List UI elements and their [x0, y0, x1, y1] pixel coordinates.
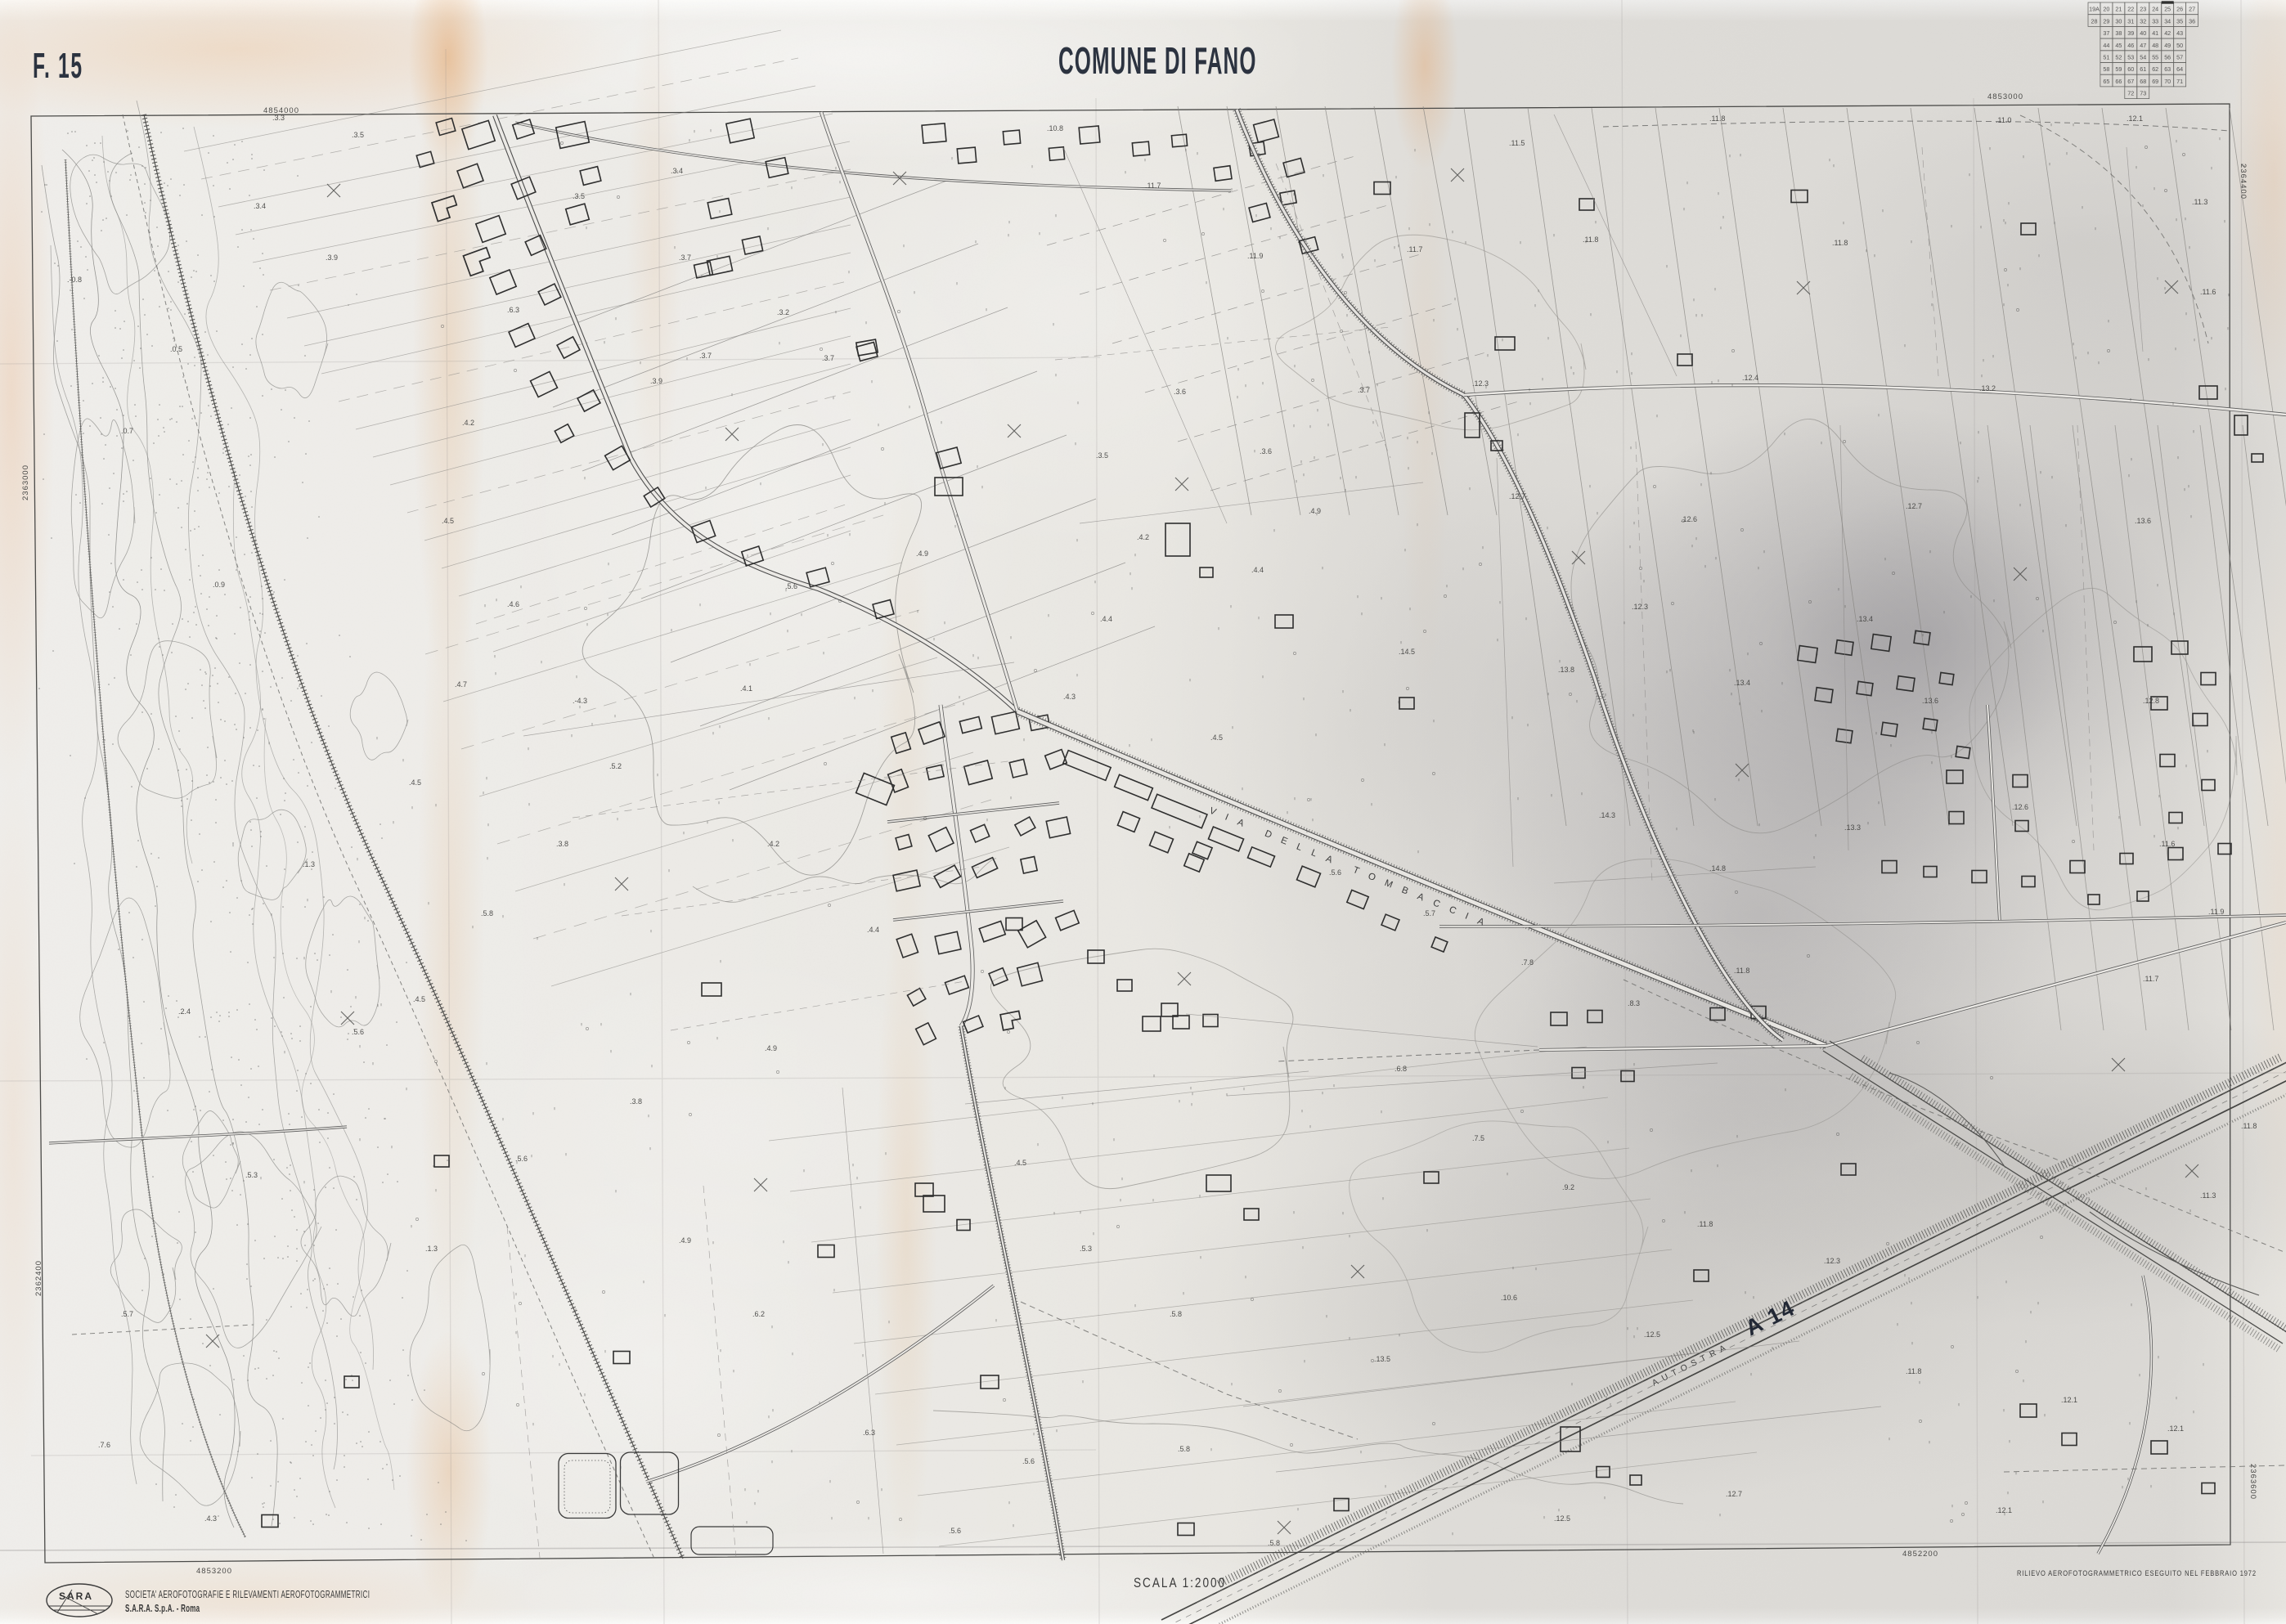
svg-text:.4.5: .4.5 [409, 778, 421, 787]
svg-text:.6.2: .6.2 [752, 1310, 765, 1318]
svg-text:.5.8: .5.8 [1268, 1539, 1280, 1547]
svg-text:.4.2: .4.2 [767, 840, 779, 848]
svg-text:.6.3: .6.3 [507, 306, 519, 314]
svg-text:21: 21 [2115, 6, 2122, 13]
svg-text:.11.8: .11.8 [1906, 1367, 1921, 1375]
svg-text:.11.8: .11.8 [1709, 114, 1725, 123]
svg-text:.7.8: .7.8 [1521, 958, 1534, 967]
svg-text:27: 27 [2189, 6, 2195, 13]
svg-text:.3.7: .3.7 [822, 354, 834, 362]
svg-text:.3.8: .3.8 [556, 840, 568, 848]
svg-text:.9.2: .9.2 [1562, 1183, 1574, 1191]
svg-text:.11.6: .11.6 [2200, 288, 2216, 296]
svg-text:.4.1: .4.1 [740, 684, 752, 693]
svg-text:.4.3: .4.3 [204, 1514, 217, 1523]
svg-text:.3.7: .3.7 [699, 352, 712, 360]
svg-text:.14.3: .14.3 [1599, 811, 1615, 819]
svg-text:.0.7: .0.7 [121, 427, 133, 435]
svg-text:.3.9: .3.9 [326, 253, 338, 262]
svg-text:.5.8: .5.8 [481, 909, 493, 917]
svg-text:.13.2: .13.2 [1979, 384, 1996, 393]
svg-text:.1.3: .1.3 [303, 860, 315, 868]
svg-text:64: 64 [2176, 65, 2183, 73]
svg-text:48: 48 [2152, 42, 2158, 49]
svg-text:66: 66 [2115, 78, 2122, 85]
svg-text:.4.3: .4.3 [1063, 693, 1076, 701]
svg-text:2363600: 2363600 [2248, 1464, 2257, 1500]
svg-text:57: 57 [2176, 54, 2183, 61]
svg-text:.-0.8: .-0.8 [67, 276, 82, 284]
svg-text:F. 15: F. 15 [33, 46, 83, 86]
svg-text:.3.2: .3.2 [777, 308, 789, 316]
svg-text:61: 61 [2140, 65, 2146, 73]
svg-text:.6.8: .6.8 [1395, 1065, 1407, 1073]
svg-text:29: 29 [2103, 17, 2109, 25]
svg-text:53: 53 [2127, 54, 2134, 61]
svg-text:SOCIETA’ AEROFOTOGRAFIE E R: SOCIETA’ AEROFOTOGRAFIE E RILEVAMENTI AE… [125, 1590, 370, 1600]
svg-text:55: 55 [2152, 54, 2158, 61]
svg-text:35: 35 [2176, 17, 2183, 25]
svg-text:.4.4: .4.4 [1251, 566, 1264, 574]
svg-text:.6.3: .6.3 [863, 1429, 875, 1437]
svg-text:.3.4: .3.4 [671, 167, 683, 175]
svg-text:.3.6: .3.6 [1260, 447, 1272, 455]
svg-text:.5.6: .5.6 [352, 1028, 364, 1036]
svg-text:.3.5: .3.5 [352, 131, 364, 139]
svg-text:37: 37 [2103, 29, 2109, 37]
svg-text:.1.3: .1.3 [425, 1245, 438, 1253]
svg-text:.13.4: .13.4 [1734, 679, 1750, 687]
svg-text:.11.6: .11.6 [2159, 840, 2175, 848]
svg-text:42: 42 [2164, 29, 2171, 37]
svg-text:63: 63 [2164, 65, 2171, 73]
svg-text:.11.7: .11.7 [2143, 975, 2158, 983]
svg-text:.3.7: .3.7 [679, 253, 691, 262]
svg-text:.12.6: .12.6 [2012, 803, 2028, 811]
svg-text:.0.9: .0.9 [213, 581, 225, 589]
svg-text:.11.7: .11.7 [1145, 182, 1161, 190]
svg-text:.8.3: .8.3 [1628, 999, 1640, 1007]
svg-text:.5.7: .5.7 [121, 1310, 133, 1318]
svg-text:19A: 19A [2089, 6, 2100, 13]
svg-text:S.A.R.A. S.p.A. - Roma: S.A.R.A. S.p.A. - Roma [125, 1604, 200, 1614]
svg-text:.4.9: .4.9 [679, 1236, 691, 1245]
svg-text:67: 67 [2127, 78, 2134, 85]
svg-text:24: 24 [2152, 6, 2158, 13]
svg-text:.4.4: .4.4 [867, 926, 879, 934]
svg-text:.5.6: .5.6 [949, 1527, 961, 1535]
svg-text:.12.1: .12.1 [2061, 1396, 2077, 1404]
svg-text:.3.6: .3.6 [1174, 388, 1186, 396]
svg-text:25: 25 [2164, 6, 2171, 13]
svg-text:.4.9: .4.9 [916, 550, 928, 558]
svg-text:30: 30 [2115, 17, 2122, 25]
svg-text:32: 32 [2140, 17, 2146, 25]
svg-text:43: 43 [2176, 29, 2183, 37]
svg-text:2363000: 2363000 [21, 464, 30, 500]
svg-text:59: 59 [2115, 65, 2122, 73]
svg-text:.13.3: .13.3 [1844, 823, 1861, 832]
svg-text:.13.8: .13.8 [1558, 666, 1574, 674]
svg-text:72: 72 [2127, 90, 2134, 97]
svg-text:4853000: 4853000 [1987, 92, 2023, 101]
svg-text:.11.8: .11.8 [1734, 967, 1749, 975]
svg-text:51: 51 [2103, 54, 2109, 61]
svg-text:.12.7: .12.7 [1726, 1490, 1742, 1498]
svg-text:.11.3: .11.3 [2200, 1191, 2216, 1200]
svg-text:.11.9: .11.9 [1247, 252, 1263, 260]
svg-text:60: 60 [2127, 65, 2134, 73]
svg-text:.4.9: .4.9 [1309, 507, 1321, 515]
svg-text:.4.2: .4.2 [1137, 533, 1149, 541]
svg-text:.4.4: .4.4 [1100, 615, 1112, 623]
svg-text:69: 69 [2152, 78, 2158, 85]
svg-text:.5.7: .5.7 [1423, 909, 1435, 917]
svg-text:RILIEVO AEROFOTOGRAMMETRICO: RILIEVO AEROFOTOGRAMMETRICO ESEGUITO NEL… [2017, 1568, 2257, 1577]
svg-text:40: 40 [2140, 29, 2146, 37]
svg-text:.13.4: .13.4 [1857, 615, 1873, 623]
svg-text:22: 22 [2127, 6, 2134, 13]
svg-text:.12.3: .12.3 [1824, 1257, 1840, 1265]
svg-text:.11.8: .11.8 [1832, 239, 1848, 247]
svg-text:56: 56 [2164, 54, 2171, 61]
svg-text:4853200: 4853200 [196, 1567, 232, 1576]
svg-text:26: 26 [2176, 6, 2183, 13]
svg-text:.5.8: .5.8 [1178, 1445, 1190, 1453]
svg-text:.11.5: .11.5 [1509, 139, 1525, 147]
svg-text:.12.1: .12.1 [2127, 114, 2143, 123]
svg-text:47: 47 [2140, 42, 2146, 49]
svg-text:SARA: SARA [59, 1590, 93, 1602]
svg-text:.12.5: .12.5 [1644, 1330, 1660, 1339]
svg-text:.11.8: .11.8 [1697, 1220, 1713, 1228]
svg-text:.4.5: .4.5 [442, 517, 454, 525]
svg-text:.5.6: .5.6 [785, 582, 797, 590]
svg-text:.12.4: .12.4 [1742, 374, 1758, 382]
svg-text:.7.5: .7.5 [1472, 1134, 1484, 1142]
svg-text:49: 49 [2164, 42, 2171, 49]
svg-text:.5.6: .5.6 [515, 1155, 528, 1163]
svg-text:.11.8: .11.8 [2241, 1122, 2257, 1130]
svg-text:45: 45 [2115, 42, 2122, 49]
svg-text:.12.1: .12.1 [2167, 1424, 2184, 1433]
svg-text:.12.3: .12.3 [1632, 603, 1648, 611]
svg-text:.4.5: .4.5 [1014, 1159, 1026, 1167]
svg-text:COMUNE DI FANO: COMUNE DI FANO [1058, 39, 1257, 82]
svg-text:.4.6: .4.6 [507, 600, 519, 608]
svg-text:41: 41 [2152, 29, 2158, 37]
svg-text:.13.6: .13.6 [2135, 517, 2151, 525]
svg-text:.11.0: .11.0 [1996, 116, 2011, 124]
svg-text:.13.6: .13.6 [1922, 697, 1938, 705]
svg-text:44: 44 [2103, 42, 2109, 49]
svg-text:.3.5: .3.5 [1096, 451, 1108, 460]
svg-text:.3.9: .3.9 [650, 377, 662, 385]
svg-text:.12.7: .12.7 [1509, 492, 1525, 500]
svg-text:.5.6: .5.6 [1022, 1457, 1035, 1465]
svg-text:.3.8: .3.8 [630, 1097, 642, 1106]
svg-text:.11.3: .11.3 [2192, 198, 2207, 206]
svg-text:28: 28 [2091, 17, 2098, 25]
svg-text:.3.3: .3.3 [272, 114, 285, 122]
svg-text:.5.3: .5.3 [1080, 1245, 1092, 1253]
svg-text:.12.8: .12.8 [2143, 697, 2159, 705]
svg-text:.2.4: .2.4 [178, 1007, 191, 1016]
svg-text:.10.8: .10.8 [1047, 124, 1063, 132]
svg-text:.10.6: .10.6 [1501, 1294, 1517, 1302]
svg-text:.-4.3: .-4.3 [573, 697, 587, 705]
svg-text:36: 36 [2189, 17, 2195, 25]
svg-text:.0.5: .0.5 [170, 345, 182, 353]
svg-text:.5.2: .5.2 [609, 762, 622, 770]
svg-text:.14.5: .14.5 [1399, 648, 1415, 656]
svg-text:.12.3: .12.3 [1472, 379, 1489, 388]
svg-text:.11.9: .11.9 [2208, 908, 2224, 916]
svg-text:31: 31 [2127, 17, 2134, 25]
svg-text:2362400: 2362400 [34, 1260, 43, 1296]
svg-text:62: 62 [2152, 65, 2158, 73]
svg-text:.12.7: .12.7 [1906, 502, 1922, 510]
svg-text:.11.7: .11.7 [1407, 245, 1422, 253]
svg-text:.12.6: .12.6 [1681, 515, 1697, 523]
svg-text:.4.2: .4.2 [462, 419, 474, 427]
svg-text:.5.6: .5.6 [1329, 868, 1341, 877]
svg-text:.5.8: .5.8 [1170, 1310, 1182, 1318]
svg-text:.4.5: .4.5 [413, 995, 425, 1003]
svg-text:.7.6: .7.6 [98, 1441, 110, 1449]
svg-text:.12.1: .12.1 [1996, 1506, 2012, 1514]
svg-text:.3.5: .3.5 [573, 192, 585, 200]
svg-text:.12.5: .12.5 [1554, 1514, 1570, 1523]
svg-text:71: 71 [2176, 78, 2183, 85]
svg-text:20: 20 [2103, 6, 2109, 13]
svg-text:33: 33 [2152, 17, 2158, 25]
svg-text:58: 58 [2103, 65, 2109, 73]
svg-text:.3.4: .3.4 [254, 202, 266, 210]
svg-text:.5.3: .5.3 [245, 1171, 258, 1179]
svg-text:.3.7: .3.7 [1358, 386, 1370, 394]
svg-text:39: 39 [2127, 29, 2134, 37]
svg-text:34: 34 [2164, 17, 2171, 25]
svg-text:38: 38 [2115, 29, 2122, 37]
svg-text:23: 23 [2140, 6, 2146, 13]
svg-text:73: 73 [2140, 90, 2146, 97]
svg-text:70: 70 [2164, 78, 2171, 85]
svg-text:46: 46 [2127, 42, 2134, 49]
svg-text:.13.5: .13.5 [1374, 1355, 1390, 1363]
svg-text:52: 52 [2115, 54, 2122, 61]
svg-text:50: 50 [2176, 42, 2183, 49]
svg-text:.4.7: .4.7 [455, 680, 467, 689]
svg-text:SCALA 1:2000: SCALA 1:2000 [1134, 1576, 1226, 1591]
svg-text:.4.5: .4.5 [1210, 733, 1223, 742]
svg-text:68: 68 [2140, 78, 2146, 85]
svg-text:.11.8: .11.8 [1583, 236, 1598, 244]
svg-text:54: 54 [2140, 54, 2146, 61]
svg-text:65: 65 [2103, 78, 2109, 85]
svg-text:4852200: 4852200 [1902, 1550, 1938, 1559]
svg-text:.4.9: .4.9 [765, 1044, 777, 1052]
svg-text:.14.8: .14.8 [1709, 864, 1726, 873]
